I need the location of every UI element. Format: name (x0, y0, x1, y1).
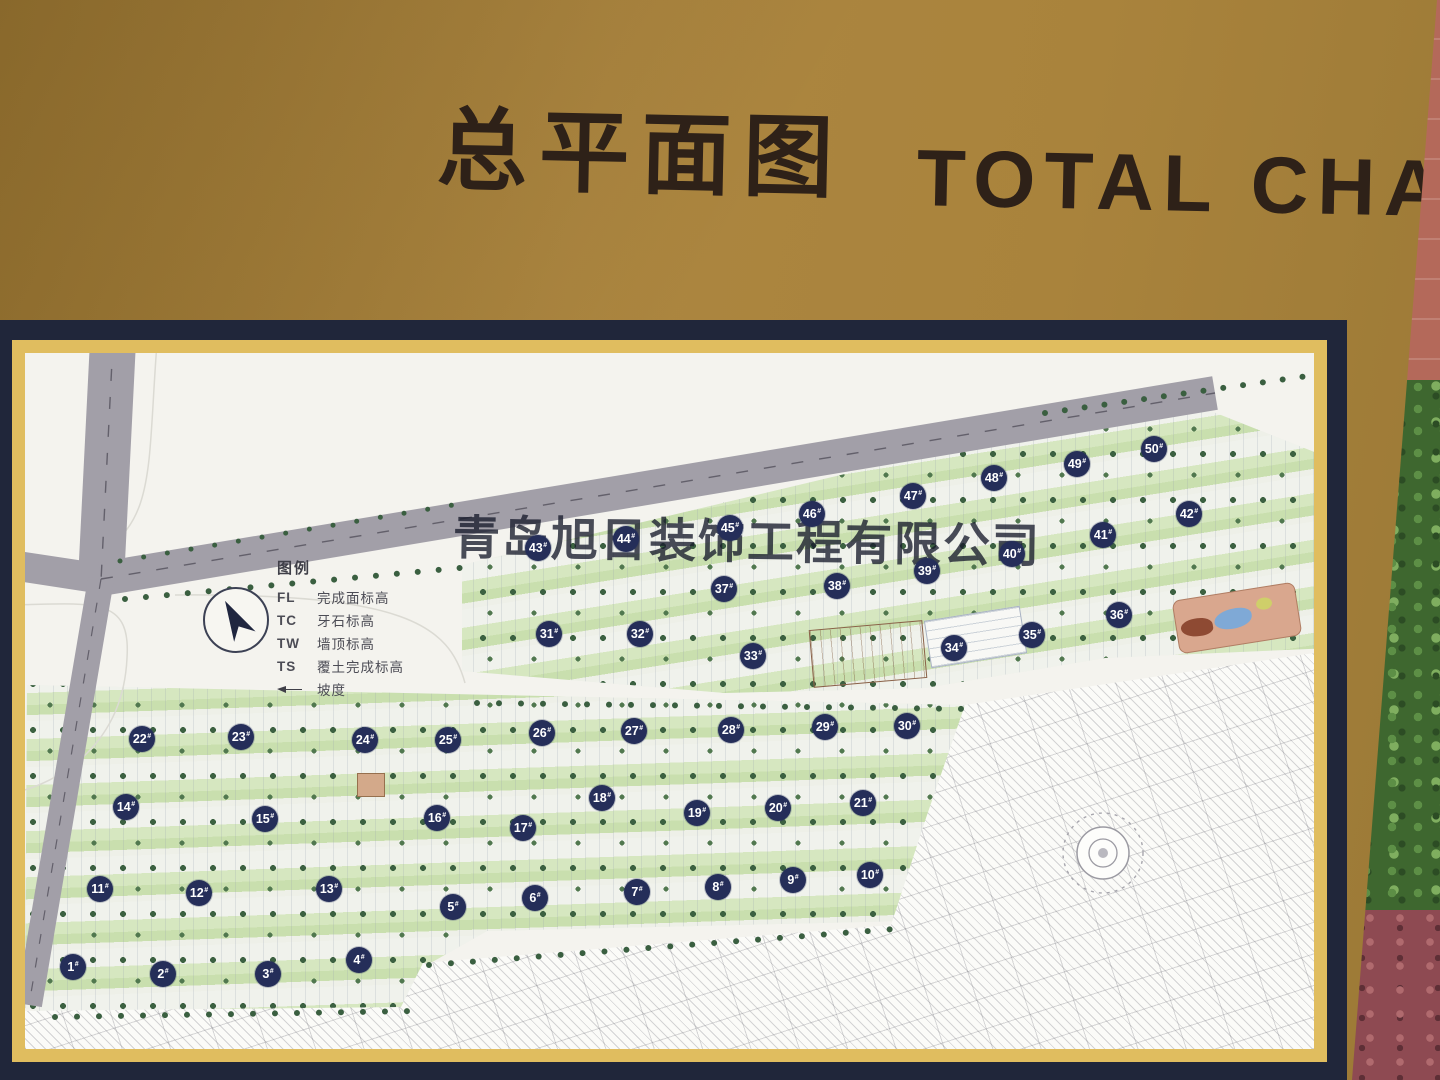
map-panel-mat: 图例 FL 完成面标高 TC 牙石标高 TW 墙顶标高 (12, 340, 1327, 1062)
building-badge: 44# (613, 526, 639, 552)
building-badge: 23# (228, 724, 254, 750)
building-badge: 46# (799, 501, 825, 527)
building-badge: 29# (812, 714, 838, 740)
building-badge: 48# (981, 465, 1007, 491)
sign-board: 总平面图 TOTAL CHART (0, 0, 1440, 1080)
building-badge: 36# (1106, 602, 1132, 628)
building-badge: 25# (435, 727, 461, 753)
title-english: TOTAL CHART (916, 138, 1440, 232)
building-badge: 3# (255, 961, 281, 987)
building-badge: 11# (87, 876, 113, 902)
building-badge: 37# (711, 576, 737, 602)
building-badge: 49# (1064, 451, 1090, 477)
building-badge: 26# (529, 720, 555, 746)
building-badge: 42# (1176, 501, 1202, 527)
building-badge: 7# (624, 879, 650, 905)
building-badge: 24# (352, 727, 378, 753)
building-badge: 18# (589, 785, 615, 811)
map-panel-frame: 图例 FL 完成面标高 TC 牙石标高 TW 墙顶标高 (0, 320, 1347, 1080)
building-badge: 35# (1019, 622, 1045, 648)
building-badge: 2# (150, 961, 176, 987)
building-badge: 50# (1141, 436, 1167, 462)
building-badge: 41# (1090, 522, 1116, 548)
building-badge: 43# (525, 535, 551, 561)
building-badge: 28# (718, 717, 744, 743)
building-badge: 5# (440, 894, 466, 920)
building-badge: 16# (424, 805, 450, 831)
building-badge: 40# (999, 541, 1025, 567)
title-chinese: 总平面图 (436, 106, 846, 205)
building-badge: 12# (186, 880, 212, 906)
building-badge: 47# (900, 483, 926, 509)
building-badge: 1# (60, 954, 86, 980)
building-badge: 13# (316, 876, 342, 902)
building-badges-layer: 1#2#3#4#5#6#7#8#9#10#11#12#13#14#15#16#1… (25, 353, 1314, 1049)
building-badge: 14# (113, 794, 139, 820)
building-badge: 17# (510, 815, 536, 841)
building-badge: 4# (346, 947, 372, 973)
photo-scene: 总平面图 TOTAL CHART (0, 0, 1440, 1080)
building-badge: 32# (627, 621, 653, 647)
building-badge: 33# (740, 643, 766, 669)
building-badge: 21# (850, 790, 876, 816)
building-badge: 20# (765, 795, 791, 821)
building-badge: 30# (894, 713, 920, 739)
building-badge: 22# (129, 726, 155, 752)
building-badge: 27# (621, 718, 647, 744)
building-badge: 31# (536, 621, 562, 647)
building-badge: 45# (717, 515, 743, 541)
building-badge: 38# (824, 573, 850, 599)
building-badge: 15# (252, 806, 278, 832)
building-badge: 10# (857, 862, 883, 888)
board-title: 总平面图 TOTAL CHART (436, 106, 1440, 232)
building-badge: 9# (780, 867, 806, 893)
building-badge: 39# (914, 558, 940, 584)
site-plan-map: 图例 FL 完成面标高 TC 牙石标高 TW 墙顶标高 (25, 353, 1314, 1049)
building-badge: 19# (684, 800, 710, 826)
building-badge: 34# (941, 635, 967, 661)
building-badge: 6# (522, 885, 548, 911)
building-badge: 8# (705, 874, 731, 900)
